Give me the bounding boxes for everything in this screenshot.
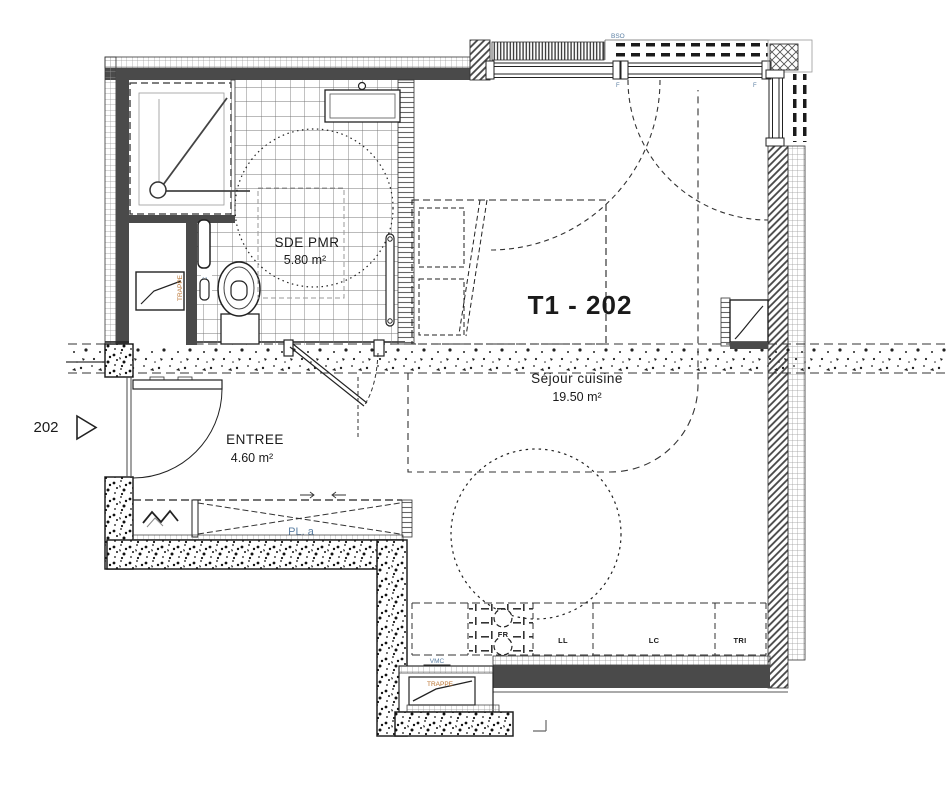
door-swing bbox=[133, 389, 222, 478]
bottom-wall-insulation bbox=[493, 656, 770, 665]
right-wall-cladding bbox=[788, 146, 805, 660]
right-window bbox=[766, 40, 812, 146]
entry-door bbox=[133, 377, 222, 478]
bathroom-area: 5.80 m² bbox=[284, 253, 326, 267]
corner-pier bbox=[770, 44, 798, 70]
window-grille-band bbox=[492, 42, 604, 60]
toilet-symbol bbox=[218, 262, 260, 344]
radiator-icon bbox=[143, 511, 178, 523]
shower-drain bbox=[150, 182, 166, 198]
window-mullion bbox=[613, 61, 620, 79]
entry-area: 4.60 m² bbox=[231, 451, 273, 465]
bottom-wall bbox=[493, 665, 770, 688]
burner-icon bbox=[494, 609, 512, 627]
bso-shutter-band bbox=[612, 40, 768, 60]
right-wall bbox=[768, 146, 788, 688]
entry-arrow-icon bbox=[77, 416, 96, 439]
window-tag-right: F bbox=[753, 83, 757, 89]
window-swing-left bbox=[490, 80, 660, 250]
appliance-tri: TRI bbox=[734, 636, 747, 645]
grab-bar bbox=[198, 220, 210, 268]
cooktop-fridge-zone: FR bbox=[469, 604, 533, 655]
faucet bbox=[359, 83, 366, 90]
kitchen-appliance-row: FR LL LC TRI bbox=[412, 603, 766, 655]
kitchen-zone-boundary bbox=[408, 90, 698, 472]
window-mullion bbox=[766, 70, 784, 78]
entry-name: ENTREE bbox=[226, 432, 284, 447]
top-wall bbox=[105, 68, 470, 80]
left-wall bbox=[116, 68, 129, 345]
floorplan-drawing: F F BSO bbox=[0, 0, 952, 800]
bso-shutter-band-right bbox=[789, 74, 807, 142]
slab-band bbox=[66, 342, 950, 373]
appliance-ll: LL bbox=[558, 636, 568, 645]
shower-wall bbox=[117, 215, 235, 223]
appliance-lc: LC bbox=[649, 636, 660, 645]
window-mullion bbox=[766, 138, 784, 146]
entry-hall: 202 ENTREE 4.60 m² PL. a bbox=[33, 344, 412, 569]
turning-circle bbox=[451, 449, 621, 619]
closet: PL. a bbox=[133, 492, 412, 538]
kitchen-trappe-label: TRAPPE bbox=[427, 681, 454, 688]
wc-partition bbox=[186, 218, 197, 345]
bath-trappe-label: TRAPPE bbox=[177, 274, 184, 301]
kitchen-vmc-label: VMC bbox=[430, 658, 445, 665]
burner-icon bbox=[494, 637, 512, 655]
right-service-hatch bbox=[721, 298, 768, 349]
window-tag-left: F bbox=[616, 83, 620, 89]
window-mullion bbox=[486, 61, 494, 79]
towel-rail bbox=[386, 234, 394, 326]
grab-bar-bracket bbox=[200, 279, 209, 300]
top-wall-insulation bbox=[105, 57, 470, 68]
floorplan-page: F F BSO bbox=[0, 0, 952, 800]
left-wall-insulation bbox=[105, 57, 116, 345]
slab-speckle bbox=[70, 345, 948, 372]
appliance-fr: FR bbox=[498, 630, 509, 639]
window-mullion bbox=[621, 61, 628, 79]
furniture-dashed bbox=[412, 200, 606, 344]
bathroom-name: SDE PMR bbox=[274, 235, 339, 250]
apartment-door-number: 202 bbox=[33, 419, 58, 436]
door-leaf bbox=[133, 380, 222, 389]
unit-title: T1 - 202 bbox=[528, 290, 633, 320]
top-window: F F BSO bbox=[486, 33, 771, 250]
living-area: 19.50 m² bbox=[552, 390, 601, 404]
corner-mark bbox=[533, 720, 546, 731]
living-name: Séjour cuisine bbox=[531, 371, 623, 386]
bso-label: BSO bbox=[611, 33, 625, 40]
